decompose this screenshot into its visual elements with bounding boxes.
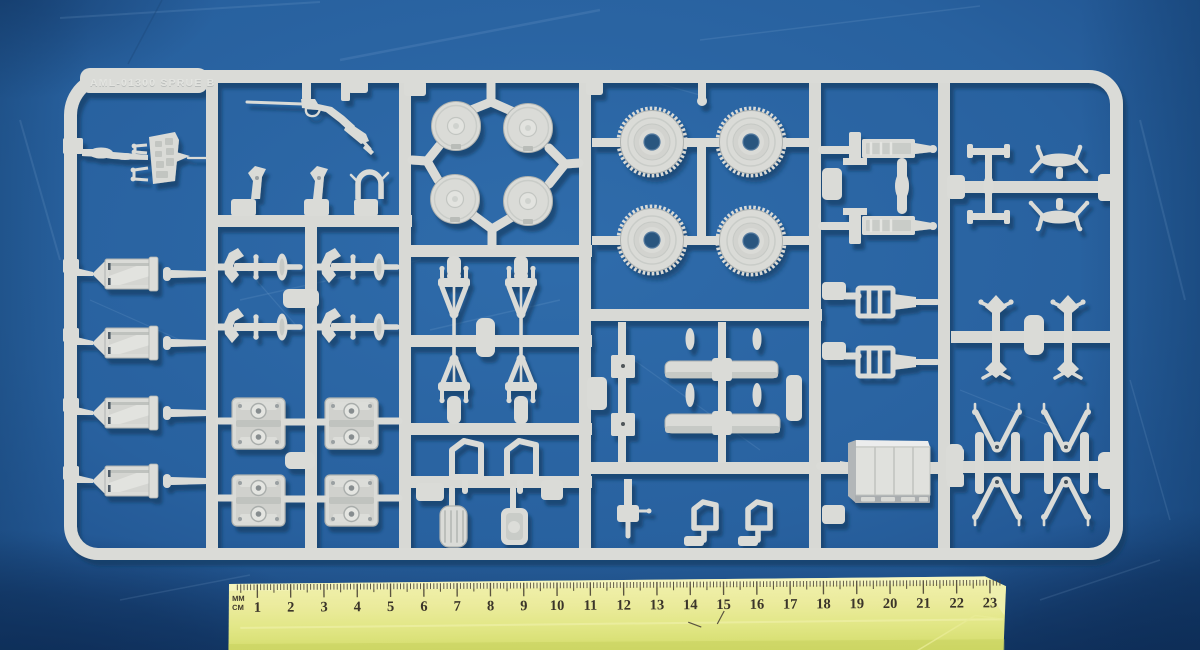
svg-text:7: 7 xyxy=(454,599,461,615)
svg-text:20: 20 xyxy=(883,596,898,612)
svg-text:9: 9 xyxy=(520,598,527,614)
svg-text:5: 5 xyxy=(387,599,394,615)
svg-text:18: 18 xyxy=(816,596,831,612)
svg-text:2: 2 xyxy=(287,600,294,616)
svg-text:3: 3 xyxy=(320,599,327,615)
svg-text:15: 15 xyxy=(716,597,731,613)
svg-text:17: 17 xyxy=(783,597,798,613)
svg-text:AML-01300 SPRUE B: AML-01300 SPRUE B xyxy=(90,77,215,89)
svg-text:14: 14 xyxy=(683,597,698,613)
svg-text:1: 1 xyxy=(254,600,261,616)
svg-text:23: 23 xyxy=(983,595,998,611)
svg-text:16: 16 xyxy=(750,597,765,613)
svg-text:MM: MM xyxy=(232,594,245,603)
svg-text:13: 13 xyxy=(650,597,665,613)
svg-text:11: 11 xyxy=(584,598,598,614)
svg-text:22: 22 xyxy=(949,596,964,612)
svg-text:4: 4 xyxy=(354,599,361,615)
svg-text:12: 12 xyxy=(616,598,631,614)
svg-text:19: 19 xyxy=(850,596,865,612)
svg-text:21: 21 xyxy=(916,596,931,612)
svg-text:8: 8 xyxy=(487,598,494,614)
svg-text:6: 6 xyxy=(420,599,427,615)
svg-text:CM: CM xyxy=(232,603,244,612)
svg-text:10: 10 xyxy=(550,598,565,614)
